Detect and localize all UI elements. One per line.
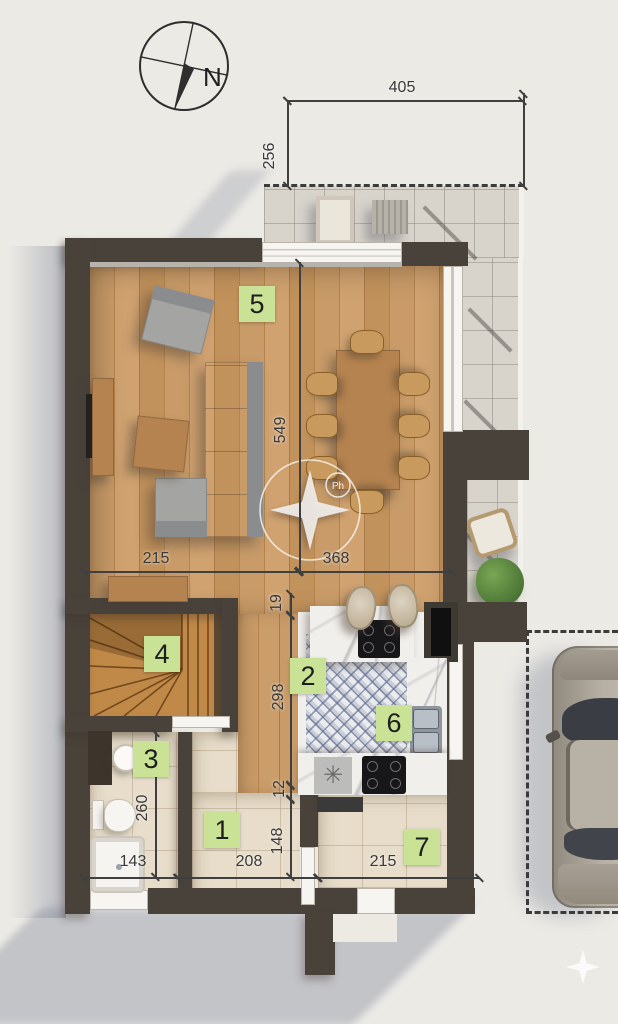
dining-chair <box>306 372 338 396</box>
wall-segment <box>178 732 192 893</box>
car-roof <box>566 740 618 830</box>
compass-needle <box>175 63 194 109</box>
dimension-line <box>318 877 480 879</box>
entrance-step <box>333 914 397 942</box>
dimension-label: 215 <box>143 550 170 568</box>
wall-segment <box>443 478 467 606</box>
window-sill <box>90 262 402 267</box>
toilet-tank <box>92 800 104 830</box>
room-label-2: 2 <box>290 658 326 694</box>
dimension-line <box>178 877 318 879</box>
dimension-label: 405 <box>389 79 416 97</box>
coffee-table <box>132 415 189 472</box>
wall-segment <box>400 242 468 266</box>
fridge-front <box>431 608 451 656</box>
sliding-door-window <box>262 242 402 264</box>
dimension-line <box>287 100 289 186</box>
room-label-4: 4 <box>144 636 180 672</box>
car <box>548 640 618 912</box>
building-shadow <box>0 908 470 1024</box>
sofa-backrest <box>155 521 207 537</box>
dining-chair <box>398 372 430 396</box>
wall-segment <box>395 888 475 914</box>
building-shadow <box>2 246 66 918</box>
bench <box>108 576 188 602</box>
tv <box>86 394 92 458</box>
wall-segment <box>300 793 318 847</box>
asterisk-symbol: ✳ <box>323 762 343 789</box>
wall-segment <box>443 430 529 480</box>
dimension-line <box>299 262 301 571</box>
dimension-line <box>83 877 178 879</box>
room-label-1: 1 <box>204 812 240 848</box>
cooktop <box>362 756 406 794</box>
dimension-label: 260 <box>134 795 152 822</box>
kitchen-sink <box>410 706 442 756</box>
toilet <box>104 799 136 832</box>
outdoor-table <box>372 200 408 234</box>
dimension-label: 549 <box>272 417 290 444</box>
dining-chair <box>306 414 338 438</box>
hall-door-leaf <box>301 847 315 905</box>
watermark: Ph <box>258 458 362 562</box>
dimension-line <box>299 571 452 573</box>
wall-segment <box>65 716 172 732</box>
room-label-5: 5 <box>239 286 275 322</box>
north-label: N <box>203 62 222 92</box>
dimension-label: 368 <box>323 550 350 568</box>
dimension-line <box>287 100 523 102</box>
bathroom-door-leaf <box>172 716 230 728</box>
plant <box>476 558 524 606</box>
dimension-line <box>290 799 292 877</box>
dimension-extension-line <box>523 93 525 186</box>
sparkle-watermark <box>566 950 600 984</box>
car-hood <box>560 650 618 680</box>
watermark-badge: Ph <box>332 481 344 492</box>
room-label-7: 7 <box>404 829 440 865</box>
dimension-label: 298 <box>270 684 288 711</box>
stair-railing <box>214 614 222 716</box>
dimension-label: 12 <box>271 780 289 798</box>
dimension-label: 148 <box>269 828 287 855</box>
dining-chair <box>398 456 430 480</box>
dimension-label: 208 <box>236 853 263 871</box>
wall-segment <box>222 598 238 732</box>
wall-segment <box>148 888 357 914</box>
porch-wall <box>305 912 335 975</box>
sofa <box>205 362 263 537</box>
dimension-label: 215 <box>370 853 397 871</box>
dimension-line <box>290 615 292 785</box>
asterisk-mat: ✳ <box>314 757 352 794</box>
entrance-door <box>357 888 395 914</box>
fridge <box>424 602 458 662</box>
car-trunk <box>558 864 618 904</box>
dimension-label: 256 <box>261 143 279 170</box>
vanity <box>88 731 112 785</box>
vestibule-floor <box>192 732 238 793</box>
dimension-label: 143 <box>120 853 147 871</box>
outdoor-armchair <box>316 196 354 244</box>
sofa-chaise <box>155 478 207 537</box>
dining-chair <box>398 414 430 438</box>
dimension-line <box>290 785 292 799</box>
dimension-label: 19 <box>268 594 286 612</box>
room-label-6: 6 <box>376 705 412 741</box>
dimension-line <box>83 571 299 573</box>
terrace-boundary-dashed <box>264 184 524 187</box>
tv-sideboard <box>92 378 114 476</box>
compass: N <box>136 16 232 116</box>
floor-plan-canvas: ✳ Ph N <box>0 0 618 1024</box>
dimension-line <box>290 593 292 615</box>
dining-chair <box>350 330 384 354</box>
room-label-3: 3 <box>133 741 169 777</box>
wall-segment <box>65 238 262 262</box>
bathroom-window <box>90 890 148 910</box>
car-windshield <box>562 698 618 744</box>
entry-bench <box>317 797 363 812</box>
east-window <box>443 266 463 432</box>
